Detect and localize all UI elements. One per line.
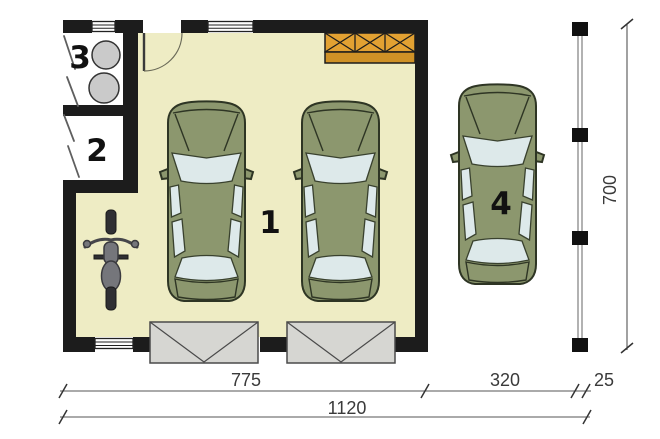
- dim-total-width: 1120: [328, 398, 367, 418]
- post: [572, 22, 588, 36]
- driveway-apron-right: [287, 322, 395, 363]
- wall-segment: [133, 337, 152, 352]
- dim-post-depth: 25: [594, 370, 614, 390]
- car-garage-left: [160, 101, 253, 301]
- door-leaf: [67, 77, 78, 106]
- water-tanks: [89, 41, 120, 103]
- floor-plan-page: 1 2 3 4 775 320 25 1120 700: [0, 0, 660, 439]
- dim-building-width: 775: [231, 370, 261, 390]
- driveway-apron-left: [150, 322, 258, 363]
- car-carport: [451, 84, 544, 284]
- floor-plan-drawing: 1 2 3 4 775 320 25 1120 700: [0, 0, 660, 439]
- wall-segment: [115, 20, 143, 33]
- wall-left: [63, 180, 76, 352]
- label-carport-space: 4: [490, 186, 512, 222]
- wall-segment: [181, 20, 208, 33]
- carport-posts: [572, 22, 588, 352]
- window-garage-top: [208, 22, 253, 32]
- moto-mirror: [132, 241, 139, 248]
- label-garage: 1: [259, 205, 281, 241]
- workbench-front: [325, 52, 415, 63]
- tank: [92, 41, 120, 69]
- door-leaf: [68, 146, 79, 177]
- wall-segment: [63, 20, 92, 33]
- post: [572, 231, 588, 245]
- dim-total-depth: 700: [600, 175, 620, 205]
- label-utility-room: 3: [69, 40, 91, 76]
- wall-segment: [253, 20, 428, 33]
- window-utility-room: [92, 22, 115, 32]
- apron-slab: [150, 322, 258, 363]
- moto-footpeg: [118, 255, 128, 259]
- car-garage-right: [294, 101, 387, 301]
- window-frame: [92, 22, 115, 32]
- wall-right: [415, 20, 428, 352]
- moto-mirror: [84, 241, 91, 248]
- post: [572, 338, 588, 352]
- tank: [89, 73, 119, 103]
- wall-interior: [123, 33, 138, 193]
- window-frame: [208, 22, 253, 32]
- workbench: [325, 33, 415, 63]
- post: [572, 128, 588, 142]
- wall-segment: [395, 337, 428, 352]
- wall-pier: [260, 337, 288, 352]
- label-storage-room: 2: [86, 133, 108, 169]
- moto-rear-wheel: [106, 287, 116, 310]
- moto-front-wheel: [106, 210, 116, 234]
- door-leaf: [64, 115, 74, 141]
- window-frame: [95, 339, 133, 349]
- moto-footpeg: [94, 255, 104, 259]
- apron-slab: [287, 322, 395, 363]
- window-garage-bottom: [95, 339, 133, 349]
- dim-carport-width: 320: [490, 370, 520, 390]
